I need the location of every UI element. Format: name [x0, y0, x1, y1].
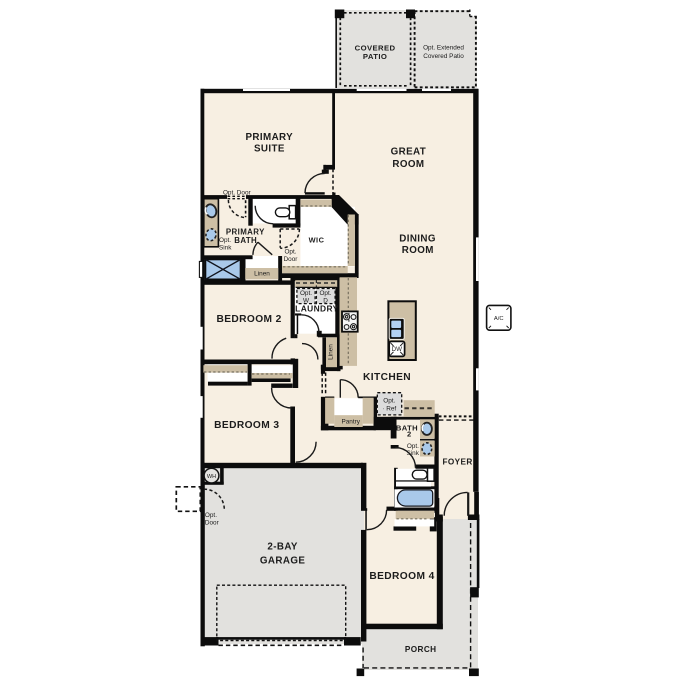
svg-text:WIC: WIC: [309, 236, 325, 245]
svg-text:ROOM: ROOM: [402, 245, 434, 256]
svg-text:Covered Patio: Covered Patio: [423, 53, 464, 60]
svg-text:Opt.: Opt.: [407, 443, 419, 450]
svg-text:BEDROOM 2: BEDROOM 2: [216, 314, 281, 325]
svg-text:BEDROOM 4: BEDROOM 4: [369, 571, 434, 582]
svg-text:Linen: Linen: [254, 271, 270, 278]
svg-text:Opt.: Opt.: [383, 398, 395, 405]
svg-text:Door: Door: [205, 520, 220, 527]
svg-text:Opt. Door: Opt. Door: [223, 189, 252, 196]
svg-text:W: W: [303, 297, 310, 304]
svg-text:WH: WH: [207, 474, 216, 480]
svg-text:GARAGE: GARAGE: [260, 556, 305, 567]
svg-text:PORCH: PORCH: [405, 645, 437, 654]
svg-text:Opt.: Opt.: [319, 290, 331, 297]
svg-text:Opt.: Opt.: [219, 237, 231, 244]
svg-text:LAUNDRY: LAUNDRY: [295, 303, 338, 313]
svg-text:ROOM: ROOM: [392, 159, 424, 170]
svg-text:Sink: Sink: [406, 450, 419, 457]
svg-text:FOYER: FOYER: [442, 457, 472, 466]
svg-text:BATH: BATH: [234, 236, 257, 245]
svg-text:Door: Door: [284, 256, 299, 263]
svg-text:Sink: Sink: [219, 245, 232, 252]
svg-text:Pantry: Pantry: [341, 419, 360, 426]
svg-text:DINING: DINING: [399, 234, 436, 245]
svg-text:BEDROOM 3: BEDROOM 3: [214, 420, 279, 431]
svg-text:Opt. Extended: Opt. Extended: [423, 44, 464, 51]
svg-text:COVERED: COVERED: [355, 43, 396, 52]
svg-text:Opt.: Opt.: [205, 512, 217, 519]
svg-text:Opt.: Opt.: [300, 290, 312, 297]
svg-text:Opt.: Opt.: [284, 248, 296, 255]
svg-text:PRIMARY: PRIMARY: [245, 132, 293, 143]
svg-text:PATIO: PATIO: [363, 52, 387, 61]
svg-text:2: 2: [407, 430, 412, 439]
svg-text:KITCHEN: KITCHEN: [363, 372, 411, 383]
svg-text:D: D: [323, 297, 328, 304]
svg-text:2-BAY: 2-BAY: [267, 541, 298, 552]
svg-text:· Ref: · Ref: [382, 406, 396, 413]
svg-text:Linen: Linen: [328, 344, 335, 360]
svg-text:GREAT: GREAT: [391, 147, 427, 158]
svg-text:A/C: A/C: [494, 316, 504, 322]
svg-text:SUITE: SUITE: [254, 143, 285, 154]
svg-text:DW: DW: [392, 346, 402, 353]
